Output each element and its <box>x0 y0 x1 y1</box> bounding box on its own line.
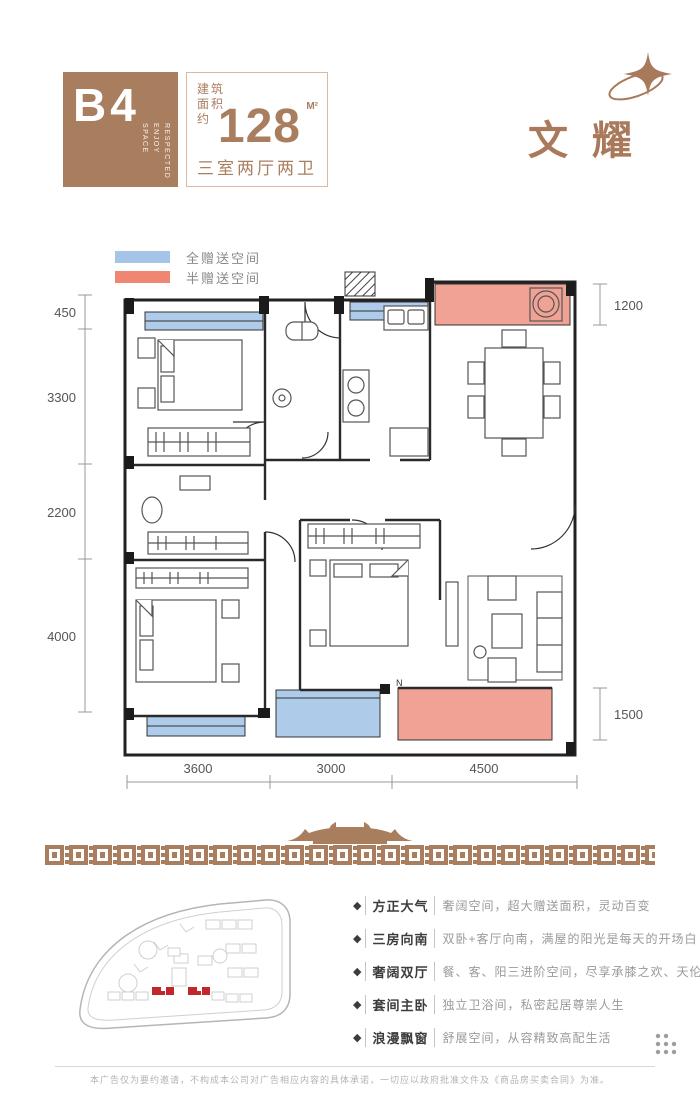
furniture-bath-1 <box>273 322 318 407</box>
unit-badge: B4 RESPECTED ENJOY SPACE <box>63 72 178 187</box>
decorative-frieze <box>45 820 655 868</box>
dimension-lines-right <box>593 284 607 740</box>
disclaimer-text: 本广告仅为要约邀请，不构成本公司对广告相应内容的具体承诺，一切应以政府批准文件及… <box>0 1073 700 1086</box>
feature-title: 奢阔双厅 <box>365 962 435 981</box>
dim-label: 3300 <box>47 390 76 405</box>
feature-desc: 舒展空间，从容精致高配生活 <box>442 1029 611 1046</box>
feature-desc: 奢阔空间，超大赠送面积，灵动百变 <box>442 897 650 914</box>
feature-row: ◆ 三房向南 双卧+客厅向南，满屋的阳光是每天的开场白 <box>353 929 693 948</box>
unit-label: B4 <box>73 78 140 132</box>
furniture-bedroom-2 <box>136 568 248 682</box>
dim-label: 3000 <box>317 761 346 776</box>
floorplan: 450 3300 2200 4000 1200 1500 3600 3000 4… <box>40 270 670 805</box>
dim-label: 3600 <box>184 761 213 776</box>
feature-row: ◆ 方正大气 奢阔空间，超大赠送面积，灵动百变 <box>353 896 693 915</box>
feature-list: ◆ 方正大气 奢阔空间，超大赠送面积，灵动百变 ◆ 三房向南 双卧+客厅向南，满… <box>353 896 693 1061</box>
area-unit: M² <box>306 101 318 112</box>
dimension-lines-bottom <box>127 775 577 789</box>
area-value: 128 <box>218 99 301 154</box>
highlighted-buildings <box>152 987 210 995</box>
site-plan-map <box>68 888 303 1046</box>
dimension-lines-left <box>78 295 92 712</box>
legend-item-full-gift: 全赠送空间 <box>115 247 261 267</box>
dim-label: 4500 <box>470 761 499 776</box>
feature-desc: 独立卫浴间，私密起居尊崇人生 <box>442 996 624 1013</box>
brand-name: 文耀 <box>528 108 656 166</box>
feature-title: 方正大气 <box>365 896 435 915</box>
area-info-box: 建筑 面积 约 128 M² 三室两厅两卫 <box>186 72 328 187</box>
feature-title: 三房向南 <box>365 929 435 948</box>
shaft-hatched <box>345 272 375 296</box>
washer <box>530 288 562 321</box>
tagline-vertical: RESPECTED ENJOY SPACE <box>141 123 170 179</box>
dim-label: 450 <box>54 305 76 320</box>
legend-swatch-blue <box>115 251 170 263</box>
feature-title: 浪漫飘窗 <box>365 1028 435 1047</box>
feature-row: ◆ 奢阔双厅 餐、客、阳三进阶空间，尽享承膝之欢、天伦之乐 <box>353 962 693 981</box>
feature-desc: 餐、客、阳三进阶空间，尽享承膝之欢、天伦之乐 <box>442 963 700 980</box>
furniture-bath-2 <box>142 476 248 554</box>
feature-row: ◆ 浪漫飘窗 舒展空间，从容精致高配生活 <box>353 1028 693 1047</box>
feature-desc: 双卧+客厅向南，满屋的阳光是每天的开场白 <box>442 930 697 947</box>
full-gift-area <box>276 690 380 737</box>
diamond-bullet-icon: ◆ <box>353 1031 361 1044</box>
furniture-bedroom-1 <box>138 338 250 456</box>
dim-label: 2200 <box>47 505 76 520</box>
footer-divider <box>55 1066 655 1067</box>
brand-logo: 文耀 <box>520 50 680 175</box>
floorplan-drawing: 450 3300 2200 4000 1200 1500 3600 3000 4… <box>40 270 670 800</box>
sparkle-orbit-icon <box>602 50 680 112</box>
diamond-bullet-icon: ◆ <box>353 998 361 1011</box>
diamond-bullet-icon: ◆ <box>353 932 361 945</box>
dim-label: 1200 <box>614 298 643 313</box>
tagline-word: ENJOY <box>152 123 159 179</box>
furniture-master-bedroom <box>308 524 420 646</box>
half-gift-area <box>398 688 552 740</box>
tagline-word: SPACE <box>141 123 148 179</box>
furniture-kitchen <box>343 306 428 456</box>
tagline-word: RESPECTED <box>163 123 170 179</box>
diamond-bullet-icon: ◆ <box>353 899 361 912</box>
layout-label: 三室两厅两卫 <box>187 154 327 179</box>
furniture-dining <box>468 330 560 456</box>
dim-label: 1500 <box>614 707 643 722</box>
brick-border <box>45 844 655 866</box>
north-label: N <box>396 678 403 688</box>
dots-grid-icon <box>653 1032 679 1058</box>
furniture-living <box>446 576 562 682</box>
poster-page: B4 RESPECTED ENJOY SPACE 建筑 面积 约 128 M² … <box>0 0 700 1108</box>
dim-label: 4000 <box>47 629 76 644</box>
legend-label: 全赠送空间 <box>186 248 261 267</box>
feature-title: 套间主卧 <box>365 995 435 1014</box>
feature-row: ◆ 套间主卧 独立卫浴间，私密起居尊崇人生 <box>353 995 693 1014</box>
diamond-bullet-icon: ◆ <box>353 965 361 978</box>
